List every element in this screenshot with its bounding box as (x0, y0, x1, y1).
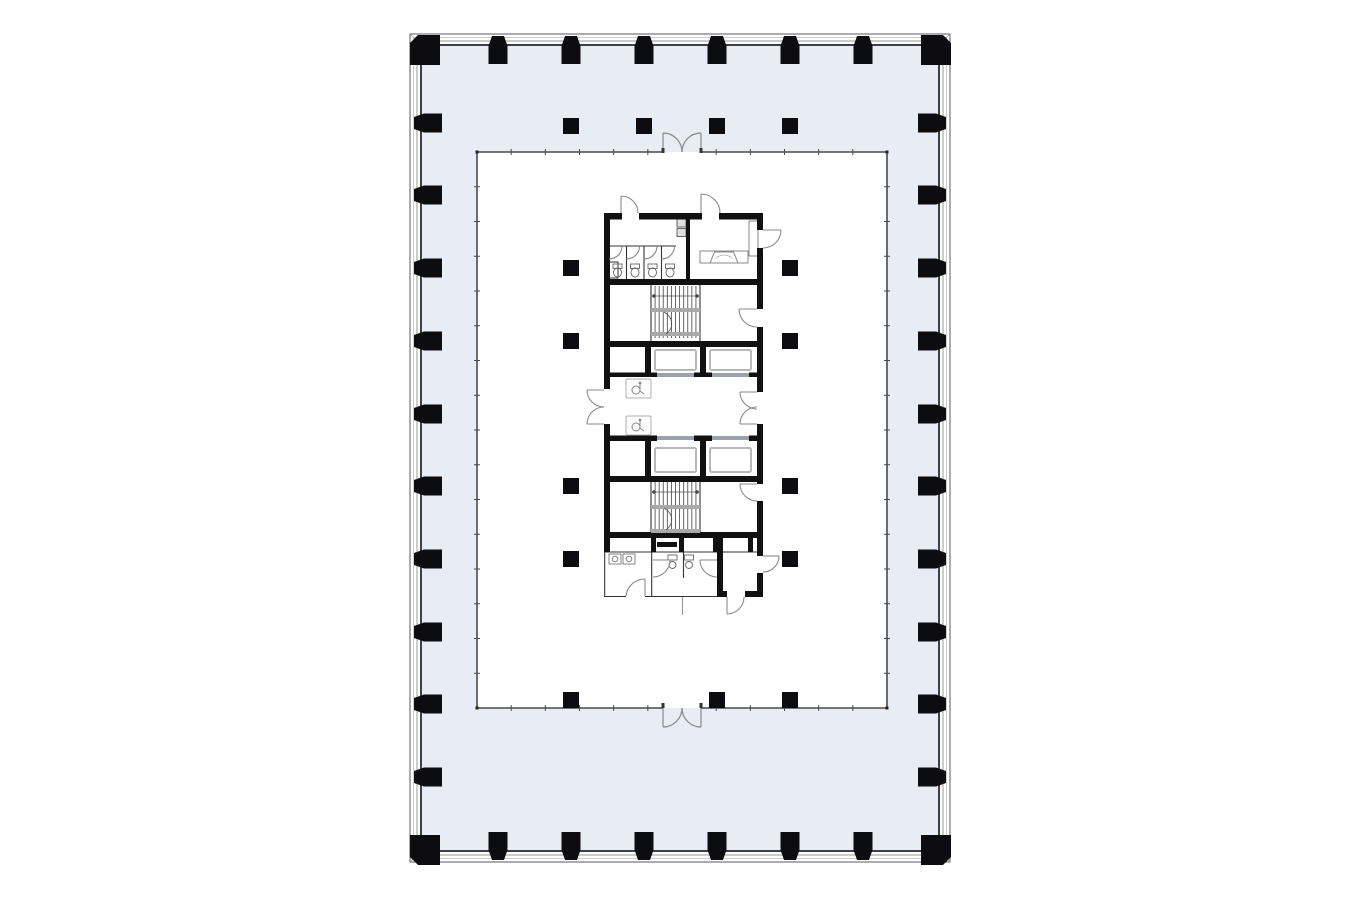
facade-column (918, 332, 946, 351)
interior-column (563, 260, 579, 276)
facade-column (414, 114, 442, 133)
facade-column (708, 36, 727, 64)
facade-column (414, 695, 442, 714)
facade-column (918, 405, 946, 424)
facade-column (414, 186, 442, 205)
facade-column (918, 695, 946, 714)
interior-column (636, 118, 652, 134)
facade-column (918, 477, 946, 496)
floor-plan-page (0, 0, 1360, 900)
interior-column (782, 333, 798, 349)
interior-column (563, 551, 579, 567)
corner-column (410, 835, 440, 865)
facade-column (918, 259, 946, 278)
door-jamb (662, 148, 665, 153)
service-core (587, 194, 781, 615)
facade-column (414, 259, 442, 278)
interior-column (782, 478, 798, 494)
facade-column (562, 832, 581, 860)
facade-column (854, 36, 873, 64)
riser-shaft (677, 219, 686, 227)
facade-column (918, 550, 946, 569)
facade-column (562, 36, 581, 64)
riser-shaft (677, 229, 686, 237)
interior-column (709, 692, 725, 708)
facade-column (781, 36, 800, 64)
door-jamb (700, 148, 703, 153)
floor-plan-canvas (0, 0, 1360, 900)
facade-column (708, 832, 727, 860)
interior-column (782, 692, 798, 708)
facade-column (635, 36, 654, 64)
facade-column (918, 186, 946, 205)
facade-column (918, 768, 946, 787)
corner-column (921, 835, 951, 865)
interior-column (563, 118, 579, 134)
facade-column (918, 623, 946, 642)
facade-column (918, 114, 946, 133)
facade-column (489, 832, 508, 860)
interior-column (782, 118, 798, 134)
corner-column (410, 35, 440, 65)
door-jamb (662, 703, 665, 708)
facade-column (414, 768, 442, 787)
facade-column (854, 832, 873, 860)
interior-column (563, 478, 579, 494)
facade-column (414, 477, 442, 496)
interior-column (563, 333, 579, 349)
door-jamb (700, 703, 703, 708)
facade-column (635, 832, 654, 860)
interior-column (563, 692, 579, 708)
interior-column (782, 260, 798, 276)
facade-column (414, 332, 442, 351)
interior-column (782, 551, 798, 567)
facade-column (489, 36, 508, 64)
interior-column (709, 118, 725, 134)
facade-column (414, 405, 442, 424)
facade-column (781, 832, 800, 860)
facade-column (414, 550, 442, 569)
corner-column (921, 35, 951, 65)
facade-column (414, 623, 442, 642)
